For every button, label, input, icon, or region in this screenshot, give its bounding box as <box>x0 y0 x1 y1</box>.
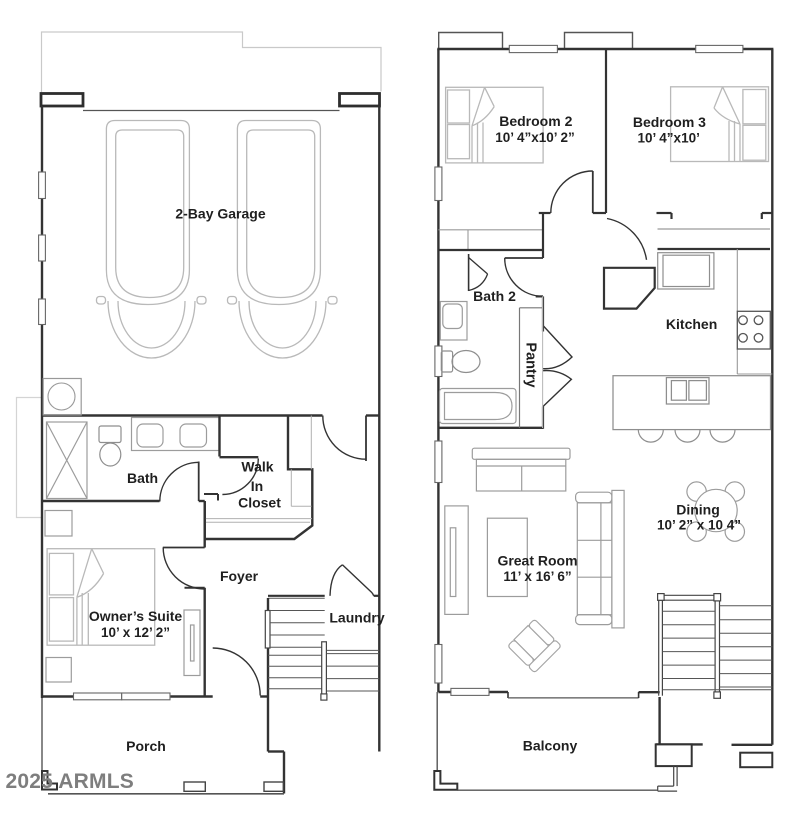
svg-text:Balcony: Balcony <box>523 737 578 753</box>
svg-text:Kitchen: Kitchen <box>666 316 717 332</box>
svg-text:Bath 2: Bath 2 <box>473 288 516 304</box>
svg-text:Pantry: Pantry <box>523 342 539 387</box>
svg-text:Bedroom 3: Bedroom 3 <box>633 114 706 130</box>
svg-text:Great Room: Great Room <box>497 553 577 569</box>
svg-text:Bath: Bath <box>127 470 158 486</box>
svg-text:11’ x 16’ 6”: 11’ x 16’ 6” <box>503 569 571 584</box>
svg-text:10’ 4”x10’: 10’ 4”x10’ <box>638 130 700 145</box>
svg-text:Walk: Walk <box>241 459 273 475</box>
svg-text:Closet: Closet <box>238 495 281 511</box>
svg-text:2025 ARMLS: 2025 ARMLS <box>6 770 134 793</box>
svg-text:Laundry: Laundry <box>329 609 384 625</box>
svg-text:Owner’s Suite: Owner’s Suite <box>89 608 183 624</box>
svg-text:10’ x 12’ 2”: 10’ x 12’ 2” <box>101 625 170 640</box>
svg-text:Porch: Porch <box>126 738 166 754</box>
svg-text:In: In <box>251 478 263 494</box>
svg-text:Foyer: Foyer <box>220 568 259 584</box>
svg-text:Bedroom 2: Bedroom 2 <box>499 113 572 129</box>
svg-text:2-Bay Garage: 2-Bay Garage <box>175 205 265 221</box>
svg-text:10’ 2” x 10 4”: 10’ 2” x 10 4” <box>657 518 741 533</box>
svg-text:10’ 4”x10’ 2”: 10’ 4”x10’ 2” <box>495 130 575 145</box>
svg-text:Dining: Dining <box>676 502 720 518</box>
